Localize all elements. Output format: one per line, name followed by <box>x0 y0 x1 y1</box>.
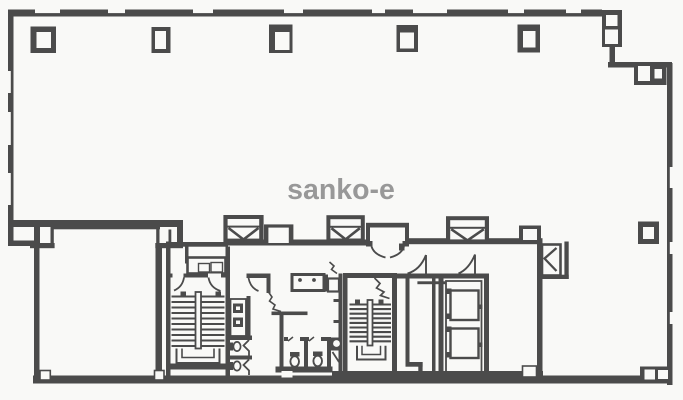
svg-text:sanko-e: sanko-e <box>287 174 395 206</box>
